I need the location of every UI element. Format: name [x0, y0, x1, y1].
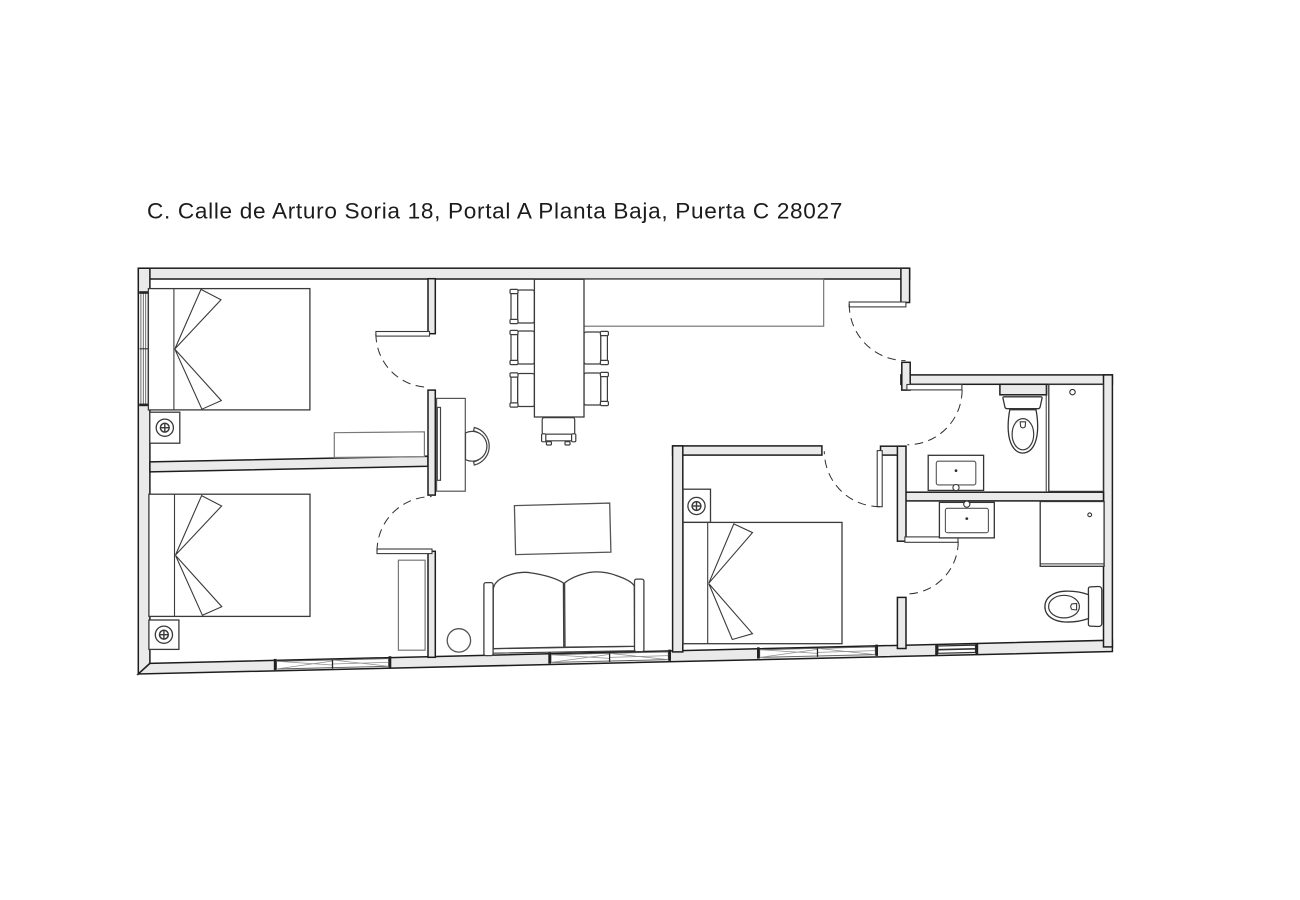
svg-text:C. Calle de Arturo Soria 18, P: C. Calle de Arturo Soria 18, Portal A Pl…	[147, 199, 843, 224]
